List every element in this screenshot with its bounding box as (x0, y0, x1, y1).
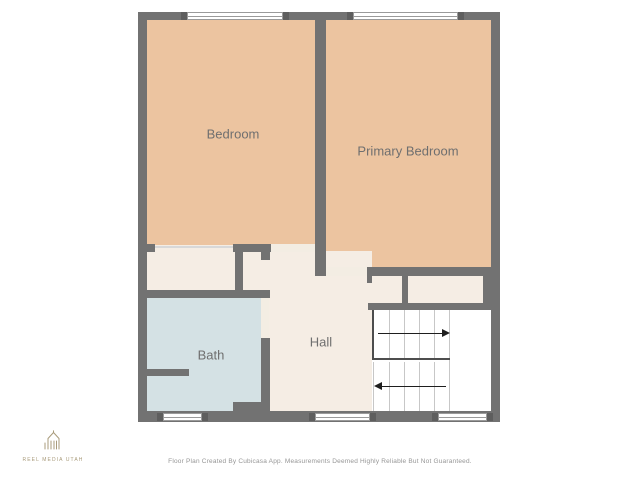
window-cap (487, 413, 493, 421)
stair-flight-edge-vertical (372, 310, 374, 360)
bath-door-opening (261, 298, 269, 338)
stair-landing-edge-line (449, 310, 450, 411)
stair-down-arrow-head (374, 382, 382, 390)
stairwell-window (438, 413, 487, 421)
footer-disclaimer: Floor Plan Created By Cubicasa App. Meas… (0, 458, 640, 465)
bath-window (163, 413, 202, 421)
stair-flight-edge-horizontal (372, 358, 450, 360)
floor-plan: Bedroom Primary Bedroom Bath Hall (0, 0, 640, 480)
stair-up-arrow-line (378, 333, 443, 334)
house-icon (41, 429, 65, 451)
stair-up-arrow-head (442, 329, 450, 337)
stair-closet-right-floor (408, 276, 483, 303)
window-cap (370, 413, 376, 421)
wall-bath-interior-stub (147, 369, 189, 376)
wall-bath-bottom-chunk (233, 402, 270, 411)
stair-tread-line (419, 310, 420, 358)
wall-exterior-right (491, 12, 500, 422)
wall-stair-closet-left-stub (367, 276, 372, 283)
bedroom-closet-open-boundary (155, 246, 235, 248)
primary-bedroom-window (353, 12, 458, 20)
bedroom-door-opening (271, 244, 315, 252)
stair-closet-left-floor (368, 276, 402, 303)
room-label-hall: Hall (310, 335, 332, 350)
wall-bath-top (138, 290, 270, 298)
wall-stair-closet-divider (402, 276, 408, 303)
room-label-bedroom: Bedroom (207, 127, 260, 142)
wall-stairwell-top (368, 303, 491, 310)
stair-tread-line (389, 310, 390, 358)
window-cap (458, 12, 464, 20)
wall-hall-alcove-jamb (261, 252, 270, 260)
stair-tread-line (404, 310, 405, 358)
hall-window (315, 413, 370, 421)
stair-down-arrow-line (381, 386, 446, 387)
wall-bedroom-divider (315, 12, 326, 276)
wall-primary-bottom (367, 267, 491, 276)
wall-exterior-left (138, 12, 147, 422)
window-cap (283, 12, 289, 20)
bedroom-window (187, 12, 283, 20)
room-label-bath: Bath (198, 348, 225, 363)
room-label-primary-bedroom: Primary Bedroom (357, 144, 458, 159)
wall-bath-right-lower (261, 338, 270, 411)
window-cap (202, 413, 208, 421)
stair-tread-line (434, 310, 435, 358)
wall-bedroom-bottom-left-stub (147, 244, 155, 252)
primary-door-opening (326, 267, 367, 276)
